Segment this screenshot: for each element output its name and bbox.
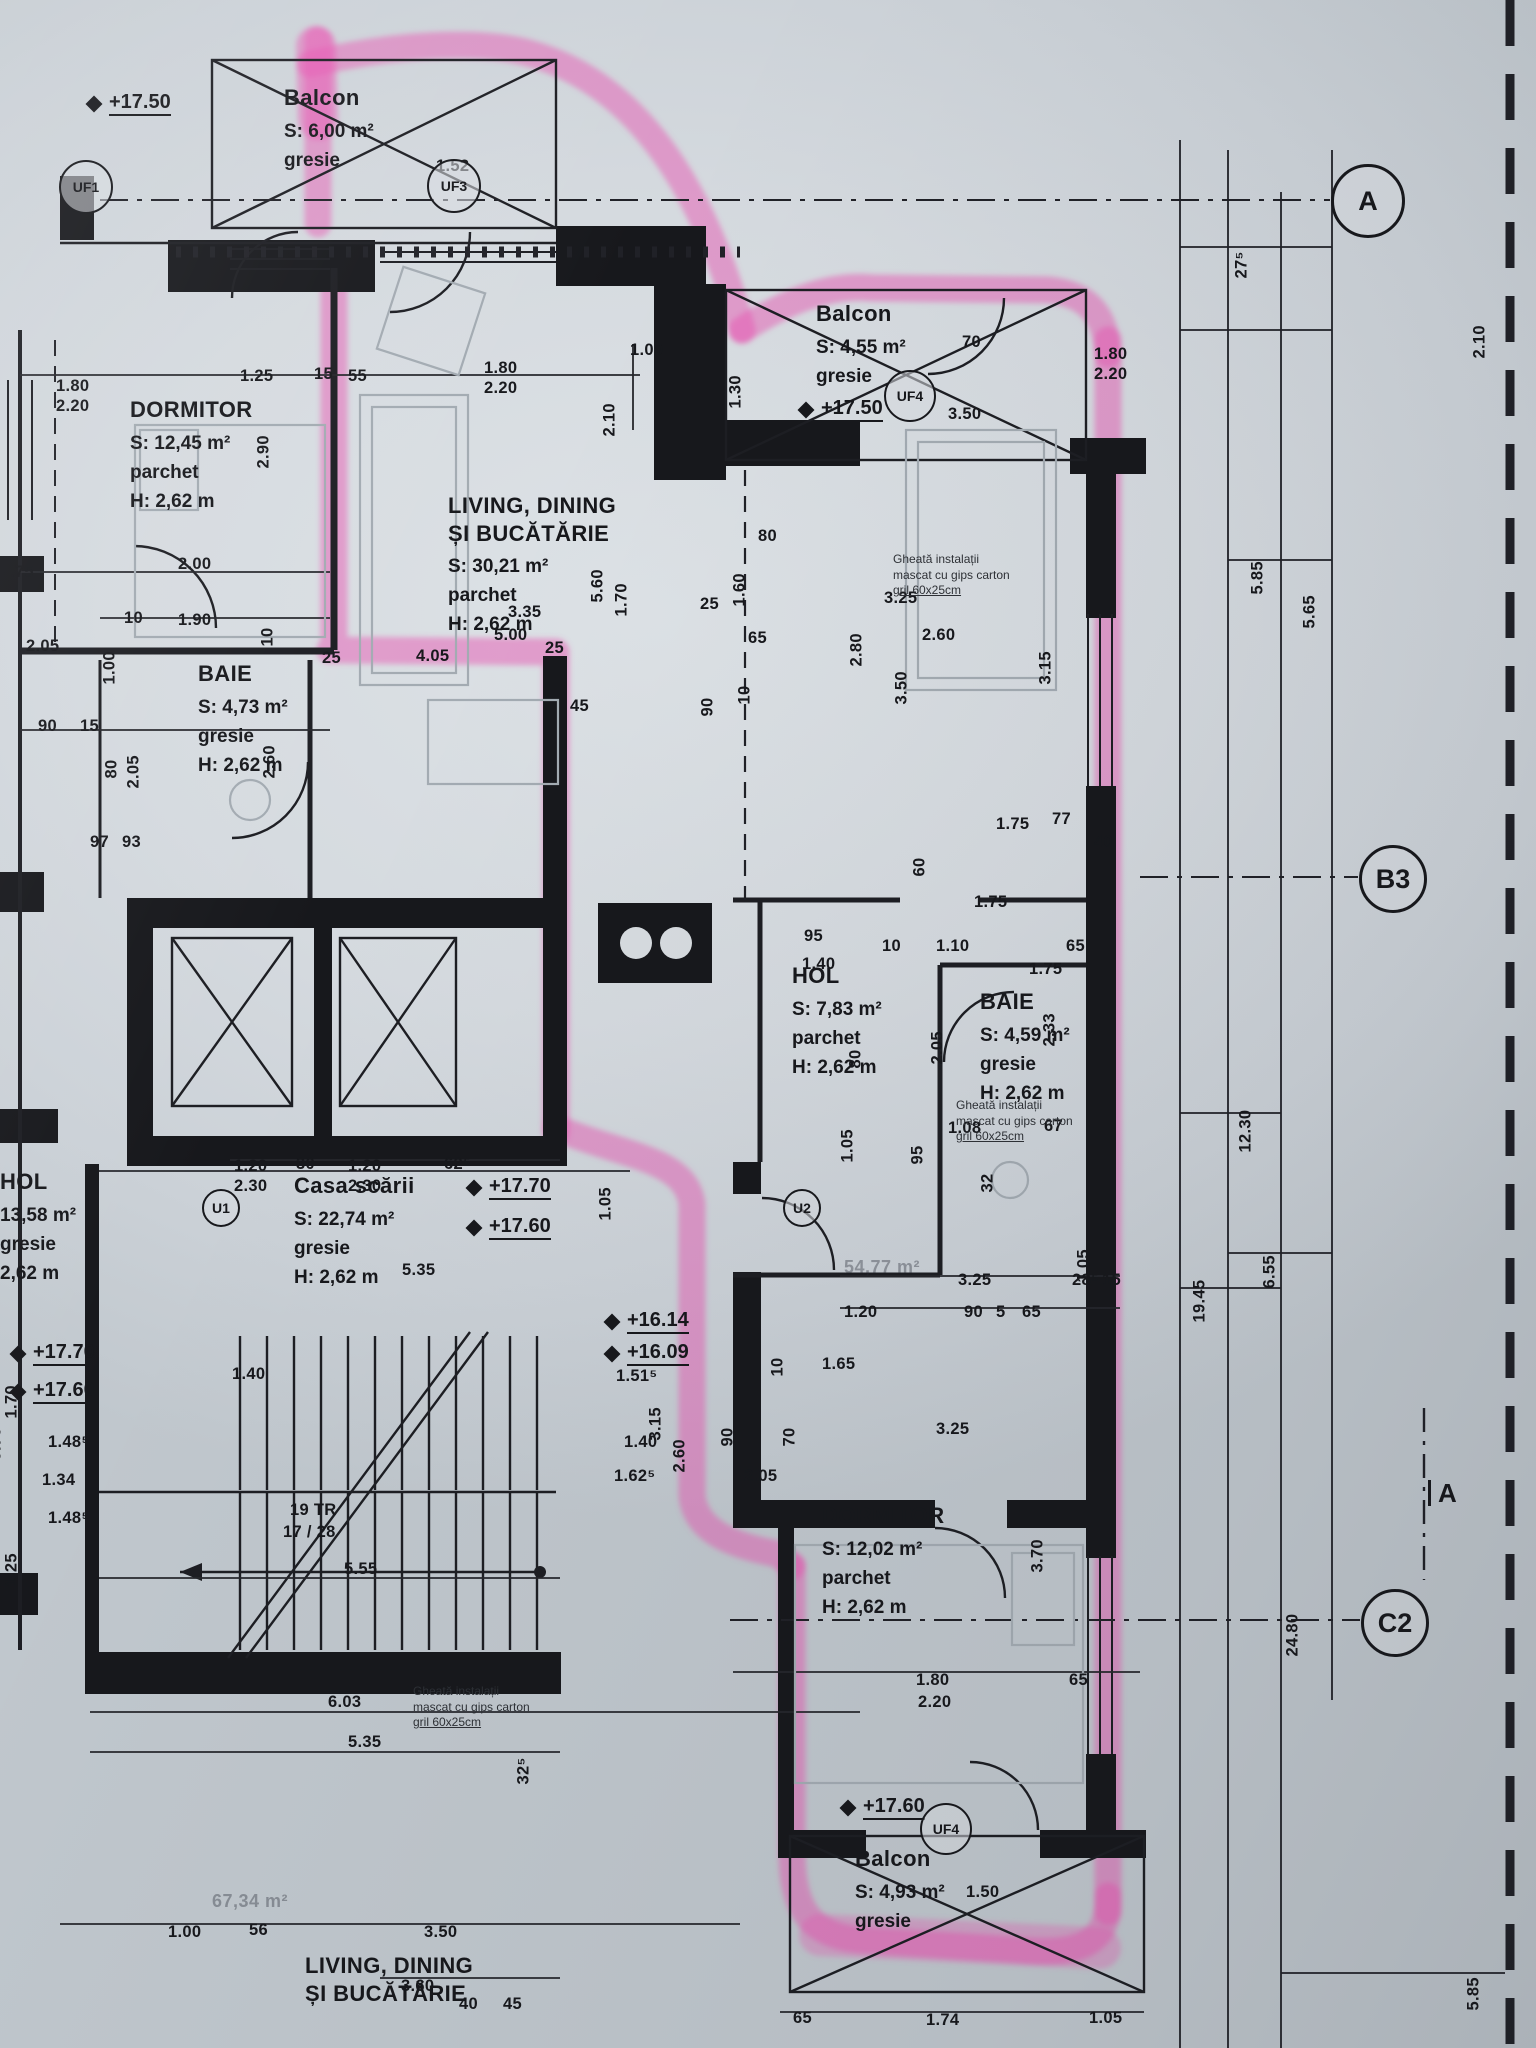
meter-symbol — [660, 927, 692, 959]
meter-symbol — [620, 927, 652, 959]
linework-layer — [8, 60, 1144, 1992]
floor-plan-page: BalconS: 6,00 m²gresieDORMITORS: 12,45 m… — [0, 0, 1536, 2048]
floor-plan-drawing — [0, 0, 1536, 2048]
